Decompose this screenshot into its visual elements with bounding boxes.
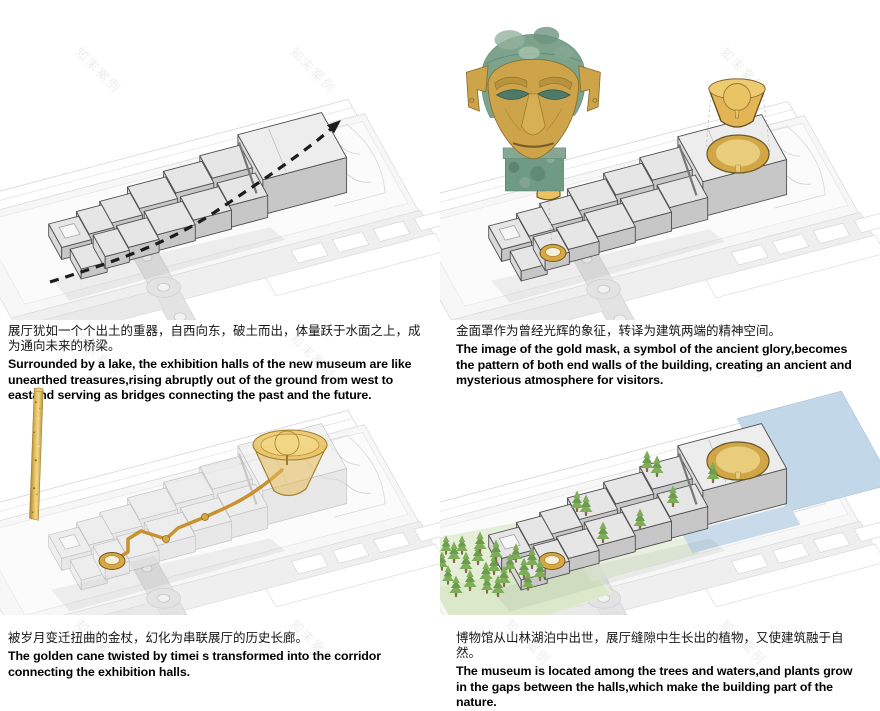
caption-cn: 金面罩作为曾经光辉的象征，转译为建筑两端的精神空间。 <box>456 324 856 339</box>
diagram-board: 展厅犹如一个个出土的重器，自西向东，破土而出，体量跃于水面之上，成为通向未来的桥… <box>0 0 880 683</box>
massing-diagram-gold-mask <box>440 0 880 320</box>
presentation-board: { "watermark": "知末案例", "panels": [ { "id… <box>0 0 880 683</box>
panel-golden-cane: 被岁月变迁扭曲的金杖，幻化为串联展厅的历史长廊。 The golden cane… <box>0 363 440 683</box>
caption-nature: 博物馆从山林湖泊中出世，展厅缝隙中生长出的植物，又使建筑融于自然。 The mu… <box>456 631 856 711</box>
caption-cn: 被岁月变迁扭曲的金杖，幻化为串联展厅的历史长廊。 <box>8 631 424 646</box>
panel-gold-mask: 金面罩作为曾经光辉的象征，转译为建筑两端的精神空间。 The image of … <box>440 0 880 363</box>
caption-en: The museum is located among the trees an… <box>456 664 856 711</box>
caption-cn: 博物馆从山林湖泊中出世，展厅缝隙中生长出的植物，又使建筑融于自然。 <box>456 631 856 661</box>
caption-golden-cane: 被岁月变迁扭曲的金杖，幻化为串联展厅的历史长廊。 The golden cane… <box>8 631 424 680</box>
panel-nature: 博物馆从山林湖泊中出世，展厅缝隙中生长出的植物，又使建筑融于自然。 The mu… <box>440 363 880 683</box>
caption-en: The golden cane twisted by timei s trans… <box>8 649 424 680</box>
massing-diagram-arrow <box>0 60 440 320</box>
panel-unearthed-halls: 展厅犹如一个个出土的重器，自西向东，破土而出，体量跃于水面之上，成为通向未来的桥… <box>0 0 440 363</box>
corridor-diagram <box>0 385 440 615</box>
nature-diagram <box>440 385 880 615</box>
caption-cn: 展厅犹如一个个出土的重器，自西向东，破土而出，体量跃于水面之上，成为通向未来的桥… <box>8 324 424 354</box>
